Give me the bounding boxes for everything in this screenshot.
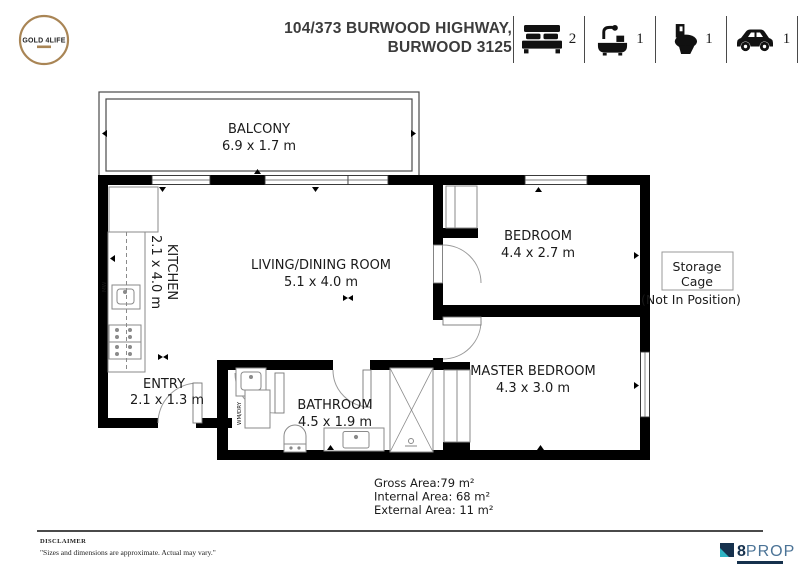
kitchen-dims: 2.1 x 4.0 m (148, 235, 163, 309)
washer-space (245, 390, 270, 428)
internal-area: Internal Area: 68 m² (374, 490, 490, 504)
storage-line2: Cage (681, 274, 713, 289)
living-dims: 5.1 x 4.0 m (284, 275, 358, 290)
bedroom-robe (446, 186, 477, 228)
8prop-logo: 8PROP (720, 541, 795, 564)
external-area: External Area: 11 m² (374, 503, 493, 517)
disclaimer-title: DISCLAIMER (40, 538, 86, 545)
brand-digit: 8 (737, 543, 746, 560)
bedroom-label: BEDROOM (504, 229, 572, 244)
brand-name: PROP (746, 543, 795, 560)
brand-tagline-bar (737, 561, 783, 564)
entry-label: ENTRY (143, 377, 185, 392)
balcony-label: BALCONY (228, 122, 290, 137)
entry-dims: 2.1 x 1.3 m (130, 393, 204, 408)
balcony-dims: 6.9 x 1.7 m (222, 139, 296, 154)
kitchen-label: KITCHEN (164, 244, 179, 300)
footer-divider (37, 530, 763, 532)
disclaimer-text: "Sizes and dimensions are approximate. A… (40, 548, 216, 557)
cooktop (109, 325, 141, 342)
fridge (109, 187, 158, 232)
laundry-label: WM/DRY (237, 401, 243, 425)
microwave-label: MW (102, 281, 108, 292)
master-label: MASTER BEDROOM (470, 364, 596, 379)
storage-cage: Storage Cage (Not In Position) (641, 252, 741, 307)
area-summary: Gross Area:79 m² Internal Area: 68 m² Ex… (374, 476, 493, 517)
storage-line1: Storage (673, 259, 722, 274)
bedroom-dims: 4.4 x 2.7 m (501, 246, 575, 261)
storage-note: (Not In Position) (641, 292, 741, 307)
master-dims: 4.3 x 3.0 m (496, 381, 570, 396)
walls (98, 175, 650, 460)
bathroom-dims: 4.5 x 1.9 m (298, 415, 372, 430)
floorplan-drawing: BALCONY 6.9 x 1.7 m KITCHEN 2.1 x 4.0 m … (0, 0, 800, 566)
living-label: LIVING/DINING ROOM (251, 258, 391, 273)
floorplan-page: GOLD 4LIFE 104/373 BURWOOD HIGHWAY, BURW… (0, 0, 800, 566)
room-labels: BALCONY 6.9 x 1.7 m KITCHEN 2.1 x 4.0 m … (102, 122, 596, 430)
gross-area: Gross Area:79 m² (374, 476, 475, 490)
bathroom-label: BATHROOM (297, 398, 372, 413)
8prop-icon (720, 543, 734, 557)
